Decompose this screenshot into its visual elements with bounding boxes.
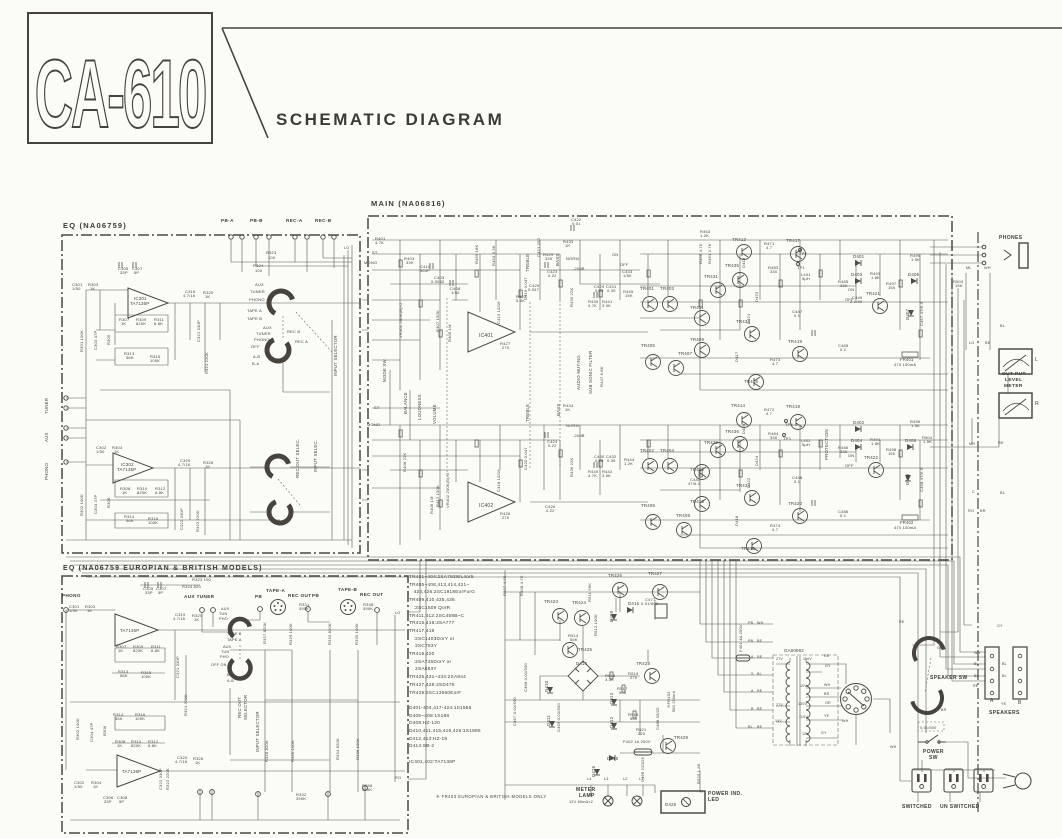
capacitor-symbols (119, 225, 815, 588)
opamp-symbols (113, 288, 515, 787)
speaker-sw-arc-1 (909, 633, 950, 674)
power-led (661, 791, 705, 813)
meter-left-needle (1005, 355, 1026, 371)
meter-right-needle (1005, 399, 1026, 415)
eq1-recout-selector-2 (265, 497, 296, 528)
bridge-rectifier (568, 661, 598, 691)
wire-network (66, 240, 1008, 820)
speaker-sw-arc-2 (907, 678, 948, 719)
schematic-page: CA-610 (0, 0, 1062, 838)
eq1-recout-selector (263, 335, 294, 366)
meter-right (999, 393, 1032, 418)
gang-coupling-lines (240, 298, 944, 745)
eq2-opamp-2 (117, 755, 160, 787)
transformer-coils (786, 662, 810, 742)
rotary-switches (225, 287, 949, 719)
ac-plug (1003, 773, 1031, 789)
eq2-opamp-1 (115, 614, 158, 646)
diode-symbols (547, 260, 917, 775)
voltage-selector (841, 684, 872, 715)
ic401-opamp (468, 312, 515, 352)
ic302-opamp (113, 453, 153, 483)
ic301-opamp (128, 288, 168, 318)
eq2-frame (62, 576, 408, 833)
header-rule (222, 28, 1062, 138)
meter-lamps (603, 796, 642, 806)
eq1-input-selector-2 (263, 452, 293, 482)
eq1-frame (62, 235, 360, 553)
din-sockets (271, 600, 356, 615)
relay-symbol (655, 604, 667, 618)
ic402-opamp (468, 482, 515, 522)
input-jacks (64, 235, 802, 797)
resistor-symbols (399, 260, 922, 718)
logo-text: CA-610 (35, 41, 206, 148)
schematic-graphics: CA-610 (0, 0, 1062, 838)
ac-outlets (912, 769, 993, 792)
output-level-meters (999, 349, 1032, 418)
logo-box: CA-610 (28, 13, 212, 148)
speaker-terminals (985, 647, 1027, 699)
main-frame (368, 216, 952, 560)
meter-left (999, 349, 1032, 374)
phones-jack (982, 243, 1028, 268)
fuse-symbols (634, 655, 750, 755)
power-switch (918, 735, 946, 743)
eq2-input-selector (226, 615, 254, 643)
